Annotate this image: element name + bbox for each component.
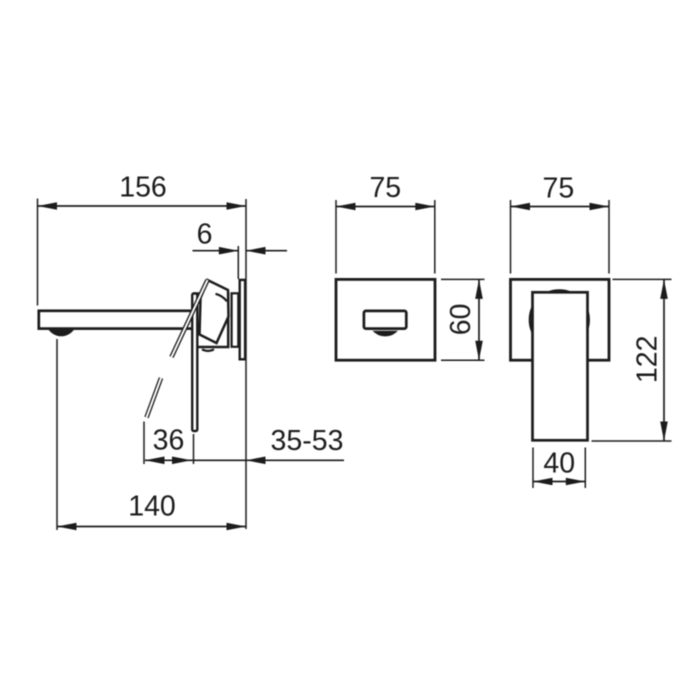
svg-text:35-53: 35-53 xyxy=(271,425,344,457)
svg-text:122: 122 xyxy=(632,336,664,384)
svg-text:40: 40 xyxy=(543,448,575,480)
svg-text:75: 75 xyxy=(543,173,575,205)
svg-text:36: 36 xyxy=(153,425,185,457)
svg-text:6: 6 xyxy=(197,219,213,251)
svg-text:75: 75 xyxy=(369,172,401,204)
svg-text:140: 140 xyxy=(128,491,176,523)
svg-text:60: 60 xyxy=(445,304,477,336)
svg-text:156: 156 xyxy=(119,172,167,204)
